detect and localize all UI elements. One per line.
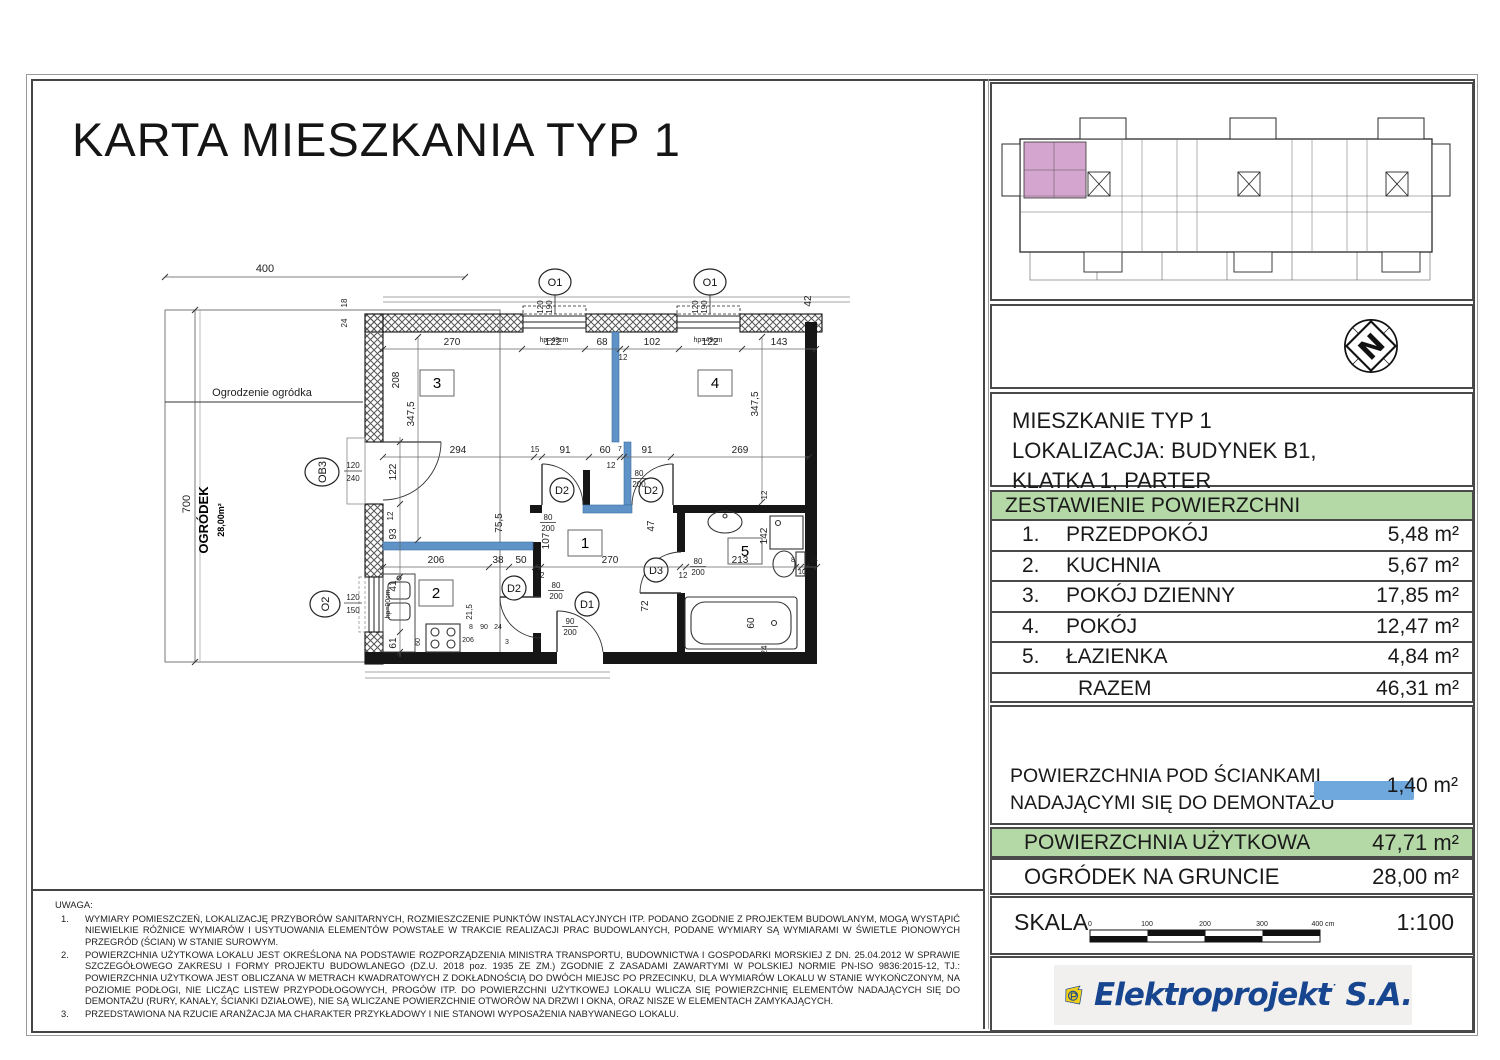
demountable-walls [383, 332, 632, 550]
room-name: ŁAZIENKA [1066, 645, 1168, 669]
svg-text:15: 15 [531, 445, 540, 454]
north-arrow-panel: N [990, 304, 1474, 389]
room-area: 12,47 m² [1376, 615, 1459, 639]
svg-text:120: 120 [346, 593, 360, 602]
room-name: PRZEDPOKÓJ [1066, 523, 1208, 547]
dimension-labels-mid: 294 15 91 60 7 91 269 12 [450, 445, 749, 470]
garden-fence-label: Ogrodzenie ogródka [212, 387, 313, 399]
scale-bar: 0 100 200 300 400 cm [1080, 918, 1340, 954]
svg-text:91: 91 [559, 445, 571, 456]
svg-text:206: 206 [428, 555, 445, 566]
area-table-panel: ZESTAWIENIE POWIERZCHNI 1. PRZEDPOKÓJ 5,… [990, 490, 1474, 703]
room-area: 5,67 m² [1388, 554, 1459, 578]
svg-text:90: 90 [566, 617, 575, 626]
svg-text:75,5: 75,5 [494, 513, 505, 533]
svg-text:50: 50 [515, 555, 527, 566]
area-table-header: ZESTAWIENIE POWIERZCHNI [992, 492, 1472, 521]
svg-text:142: 142 [759, 527, 770, 544]
window-tag-o1-right: O1 120 190 [691, 269, 726, 314]
svg-text:200: 200 [563, 628, 577, 637]
room-name: KUCHNIA [1066, 554, 1161, 578]
notes-separator [33, 889, 983, 891]
svg-text:143: 143 [771, 337, 788, 348]
svg-text:200: 200 [632, 480, 646, 489]
door-d2-kitchen: D2 80 200 [500, 576, 564, 638]
page-title: KARTA MIESZKANIA TYP 1 [72, 112, 681, 167]
door-d2-hall-left: D2 80 200 [540, 464, 583, 533]
svg-text:200: 200 [1199, 921, 1211, 928]
scale-label: SKALA [1014, 909, 1088, 936]
column-divider-thin [988, 79, 989, 1029]
apartment-card-page: KARTA MIESZKANIA TYP 1 Ogrodzenie ogródk… [0, 0, 1500, 1060]
column-divider [983, 79, 985, 1029]
svg-text:24: 24 [810, 557, 818, 564]
roof-overhang-lines [365, 297, 850, 678]
svg-text:240: 240 [346, 474, 360, 483]
svg-text:21,5: 21,5 [465, 604, 474, 620]
svg-text:347,5: 347,5 [750, 391, 761, 416]
svg-text:0: 0 [1088, 921, 1092, 928]
logo-emblem-icon [1064, 966, 1084, 1024]
floor-plan: Ogrodzenie ogródka OGRÓDEK 28,00m² 400 7… [150, 252, 870, 704]
svg-text:120: 120 [691, 300, 700, 314]
svg-text:213: 213 [732, 555, 749, 566]
svg-text:91: 91 [641, 445, 653, 456]
total-label: RAZEM [1078, 677, 1152, 701]
usable-area-label: POWIERZCHNIA UŻYTKOWA [1024, 831, 1310, 855]
svg-text:8: 8 [791, 557, 795, 564]
room-area: 17,85 m² [1376, 584, 1459, 608]
svg-text:122: 122 [545, 337, 562, 348]
room-3-label: 3 [433, 375, 441, 392]
svg-text:122: 122 [388, 463, 399, 480]
note-item: 3. PRZEDSTAWIONA NA RZUCIE ARANŻACJA MA … [55, 1008, 960, 1020]
garden-area-value: 28,00 m² [1372, 864, 1459, 890]
svg-text:80: 80 [544, 513, 553, 522]
usable-area-row: POWIERZCHNIA UŻYTKOWA 47,71 m² [990, 827, 1474, 858]
svg-text:24: 24 [760, 645, 769, 654]
room-area: 5,48 m² [1388, 523, 1459, 547]
location-panel: MIESZKANIE TYP 1 LOKALIZACJA: BUDYNEK B1… [990, 392, 1474, 487]
svg-text:294: 294 [450, 445, 467, 456]
notes-heading: UWAGA: [55, 899, 960, 911]
garden-area-value: 28,00m² [216, 503, 226, 537]
svg-text:120: 120 [536, 300, 545, 314]
svg-text:8: 8 [469, 624, 473, 631]
svg-text:24: 24 [340, 318, 349, 327]
svg-text:72: 72 [640, 600, 651, 612]
svg-text:O1: O1 [703, 277, 718, 289]
svg-text:200: 200 [541, 524, 555, 533]
svg-text:12: 12 [760, 490, 769, 499]
svg-text:269: 269 [732, 445, 749, 456]
svg-text:80: 80 [552, 581, 561, 590]
door-d3-bathroom: D3 80 200 [640, 552, 706, 593]
demountable-area-value: 1,40 m² [1387, 774, 1458, 798]
scale-value: 1:100 [1396, 909, 1454, 936]
svg-text:60: 60 [746, 617, 757, 629]
table-row: 5. ŁAZIENKA 4,84 m² [992, 643, 1472, 674]
svg-text:O1: O1 [548, 277, 563, 289]
svg-text:18: 18 [340, 298, 349, 307]
svg-text:60: 60 [415, 638, 422, 646]
svg-text:3: 3 [505, 639, 509, 646]
room-labels: 3 4 1 2 5 [419, 370, 762, 606]
svg-text:42: 42 [803, 295, 814, 307]
dimension-labels-kitchen: 206 60 8 90 24 3 [415, 624, 509, 646]
note-text: POWIERZCHNIA UŻYTKOWA LOKALU JEST OKREŚL… [85, 949, 960, 1007]
svg-text:80: 80 [635, 469, 644, 478]
svg-text:D2: D2 [507, 583, 521, 595]
garden-name: OGRÓDEK [196, 486, 211, 554]
svg-text:206: 206 [462, 637, 474, 644]
svg-text:120: 120 [346, 461, 360, 470]
scale-panel: SKALA 1:100 0 100 200 300 400 cm [990, 896, 1474, 955]
svg-text:7: 7 [618, 446, 622, 453]
window-o1-left [523, 306, 586, 332]
svg-text:102: 102 [644, 337, 661, 348]
note-item: 2. POWIERZCHNIA UŻYTKOWA LOKALU JEST OKR… [55, 949, 960, 1007]
svg-text:270: 270 [602, 555, 619, 566]
room-name: POKÓJ DZIENNY [1066, 584, 1235, 608]
svg-text:68: 68 [596, 337, 608, 348]
svg-text:300: 300 [1256, 921, 1268, 928]
svg-text:OB3: OB3 [317, 461, 329, 483]
stove [426, 624, 460, 652]
svg-text:D2: D2 [555, 485, 569, 497]
kitchen-window-o2: hp=90cm O2 120 150 [310, 577, 392, 632]
svg-text:12: 12 [607, 461, 616, 470]
room-4-label: 4 [711, 375, 719, 392]
dimension-label: 400 [256, 263, 274, 275]
demountable-area-panel: POWIERZCHNIA POD ŚCIANKAMI NADAJĄCYMI SI… [990, 705, 1474, 825]
table-row: 1. PRZEDPOKÓJ 5,48 m² [992, 521, 1472, 552]
svg-text:200: 200 [549, 592, 563, 601]
svg-text:400 cm: 400 cm [1312, 921, 1335, 928]
note-text: WYMIARY POMIESZCZEŃ, LOKALIZACJĘ PRZYBOR… [85, 913, 960, 948]
dimension-label: 700 [181, 495, 193, 513]
table-total-row: RAZEM 46,31 m² [992, 674, 1472, 705]
building-overview-panel [990, 82, 1474, 301]
washer [770, 516, 803, 549]
svg-text:208: 208 [391, 371, 402, 388]
room-1-label: 1 [581, 535, 589, 552]
svg-text:D2: D2 [644, 485, 658, 497]
svg-text:D1: D1 [580, 599, 594, 611]
svg-text:38: 38 [492, 555, 504, 566]
table-row: 2. KUCHNIA 5,67 m² [992, 552, 1472, 583]
svg-text:100: 100 [1141, 921, 1153, 928]
total-area: 46,31 m² [1376, 677, 1459, 701]
svg-text:93: 93 [388, 528, 399, 540]
svg-text:12: 12 [386, 511, 395, 520]
logo-panel: Elektroprojekt˙ S.A. [990, 956, 1474, 1032]
svg-text:47: 47 [646, 520, 657, 532]
logo-wordmark: Elektroprojekt˙ S.A. [1094, 977, 1412, 1013]
svg-text:190: 190 [545, 300, 554, 314]
svg-text:41: 41 [388, 580, 399, 592]
note-text: PRZEDSTAWIONA NA RZUCIE ARANŻACJA MA CHA… [85, 1008, 960, 1020]
svg-text:60: 60 [599, 445, 611, 456]
toilet [773, 551, 795, 577]
demountable-label: POWIERZCHNIA POD ŚCIANKAMI NADAJĄCYMI SI… [1010, 763, 1335, 817]
location-line1: MIESZKANIE TYP 1 [1012, 406, 1472, 436]
svg-text:122: 122 [702, 337, 719, 348]
company-logo: Elektroprojekt˙ S.A. [1054, 965, 1412, 1025]
svg-text:150: 150 [346, 606, 360, 615]
usable-area-value: 47,71 m² [1372, 830, 1459, 856]
svg-text:270: 270 [444, 337, 461, 348]
table-row: 4. POKÓJ 12,47 m² [992, 613, 1472, 644]
building-overview-plan [992, 84, 1472, 299]
svg-text:61: 61 [388, 637, 399, 649]
window-tag-o1-left: O1 120 190 [536, 269, 571, 314]
location-line2: LOKALIZACJA: BUDYNEK B1, [1012, 436, 1472, 466]
svg-text:12: 12 [679, 571, 688, 580]
note-item: 1. WYMIARY POMIESZCZEŃ, LOKALIZACJĘ PRZY… [55, 913, 960, 948]
svg-text:80: 80 [694, 557, 703, 566]
svg-text:347,5: 347,5 [406, 401, 417, 426]
north-arrow-icon: N [1325, 306, 1417, 386]
svg-text:107: 107 [541, 532, 552, 549]
svg-text:90: 90 [480, 624, 488, 631]
door-d2-room4: D2 80 200 [631, 464, 673, 505]
room-name: POKÓJ [1066, 615, 1137, 639]
garden-label: OGRÓDEK NA GRUNCIE [1024, 864, 1279, 890]
svg-text:24: 24 [494, 624, 502, 631]
svg-text:O2: O2 [320, 597, 332, 612]
svg-text:200: 200 [691, 568, 705, 577]
svg-text:190: 190 [700, 300, 709, 314]
entry-door-d1: D1 90 200 [557, 592, 603, 652]
room-2-label: 2 [432, 585, 440, 602]
svg-text:12: 12 [619, 353, 628, 362]
svg-text:10: 10 [798, 569, 806, 576]
garden-area-row: OGRÓDEK NA GRUNCIE 28,00 m² [990, 858, 1474, 895]
svg-text:12: 12 [536, 571, 545, 580]
notes-block: UWAGA: 1. WYMIARY POMIESZCZEŃ, LOKALIZAC… [55, 899, 960, 1021]
balcony-door-ob3: OB3 120 240 [305, 438, 441, 504]
table-row: 3. POKÓJ DZIENNY 17,85 m² [992, 582, 1472, 613]
room-area: 4,84 m² [1388, 645, 1459, 669]
bathroom-fixtures [685, 511, 805, 649]
bathtub [685, 597, 797, 649]
